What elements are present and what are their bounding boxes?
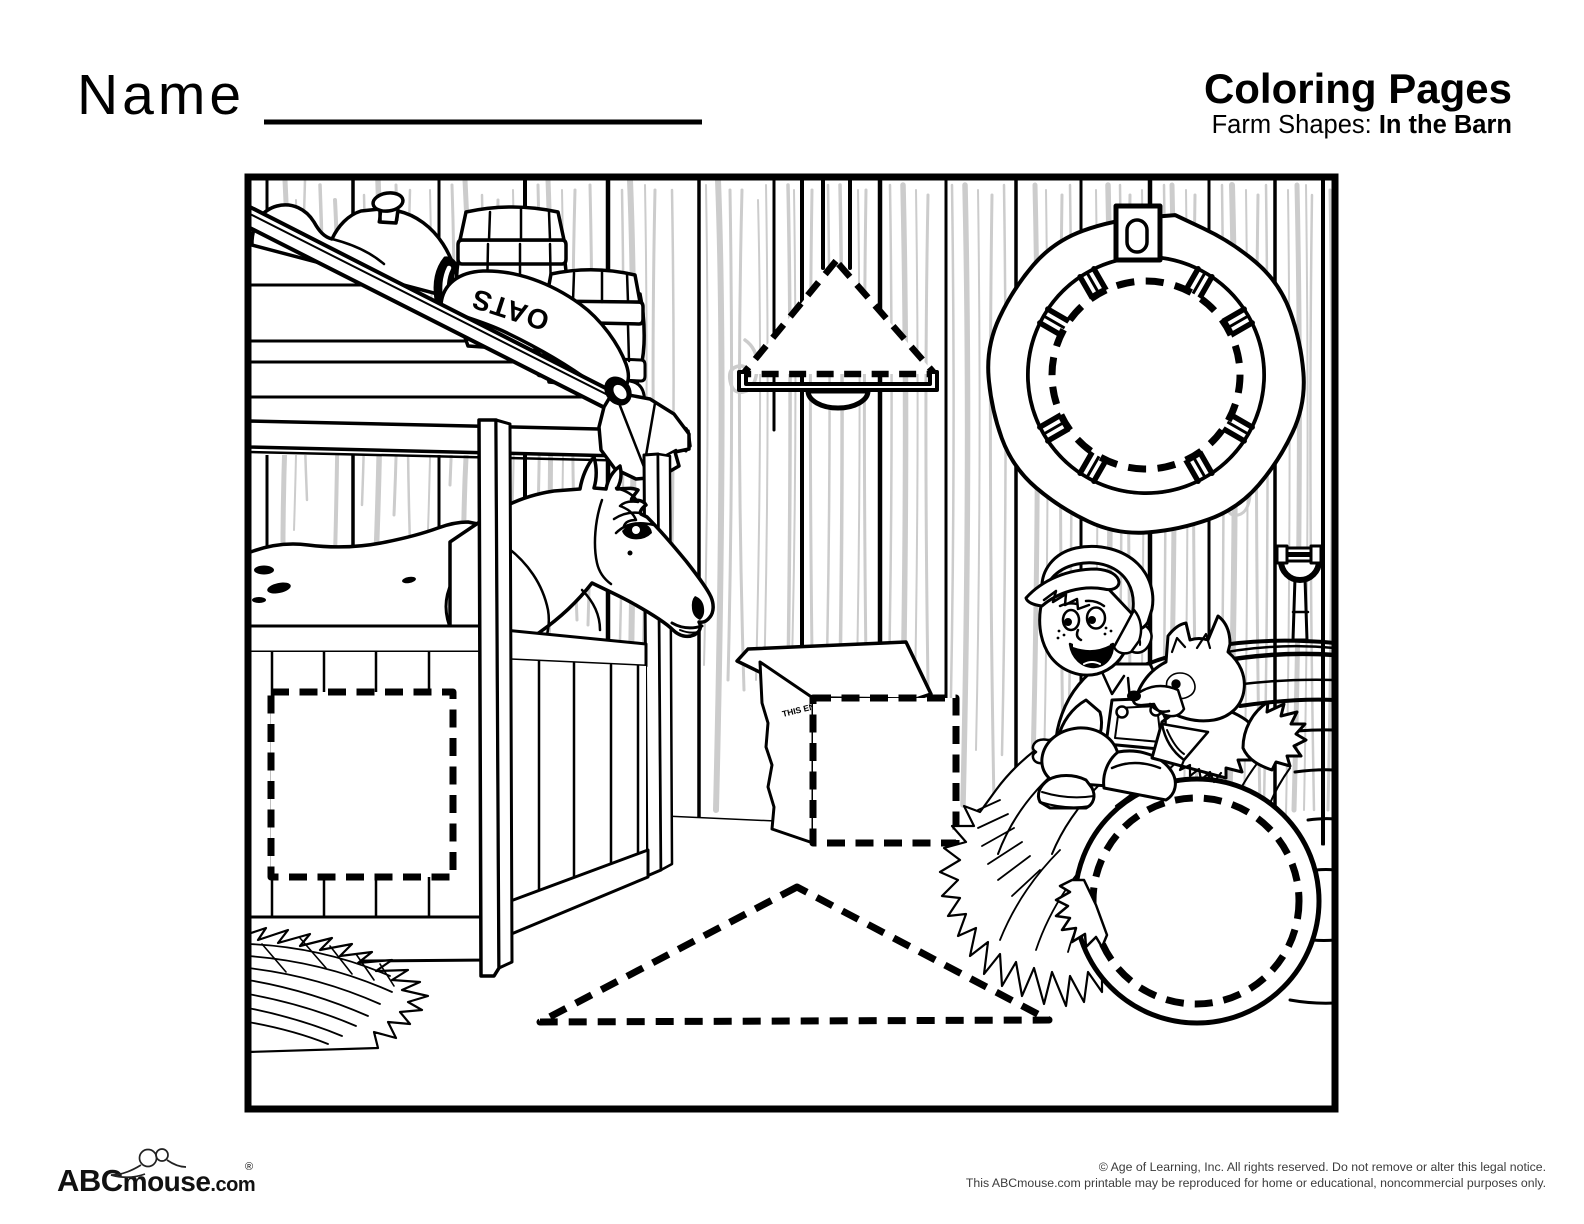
svg-text:© Age of Learning, Inc. All ri: © Age of Learning, Inc. All rights reser… — [1099, 1160, 1546, 1174]
svg-text:®: ® — [245, 1161, 253, 1173]
svg-text:This ABCmouse.com printable ma: This ABCmouse.com printable may be repro… — [966, 1176, 1546, 1190]
svg-text:Name: Name — [77, 63, 245, 127]
svg-text:Farm Shapes: In the Barn: Farm Shapes: In the Barn — [1212, 111, 1512, 139]
svg-text:Coloring Pages: Coloring Pages — [1204, 65, 1512, 112]
